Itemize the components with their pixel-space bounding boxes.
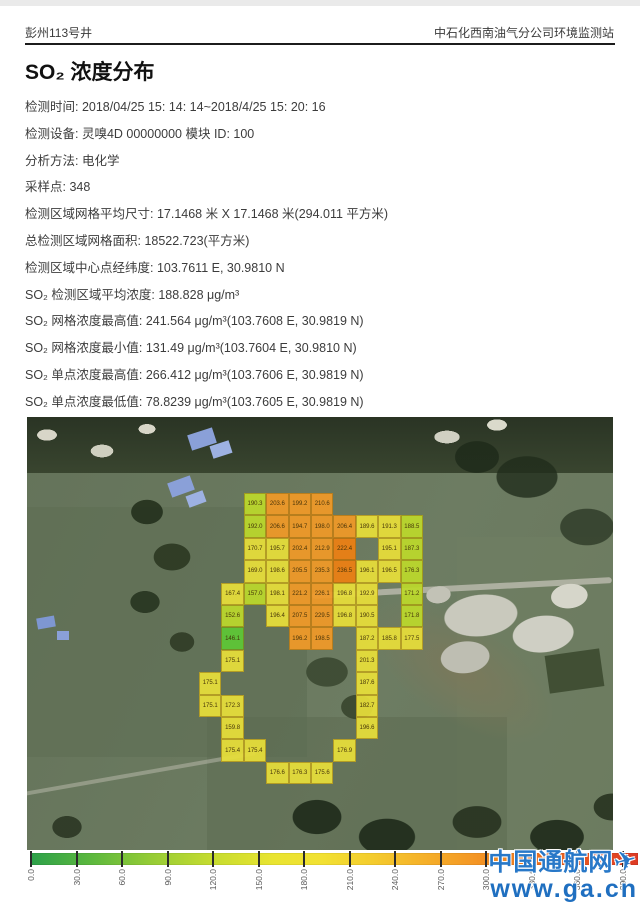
grid-cell: 196.6 xyxy=(356,717,378,739)
watermark: 中国通航网✈ www.ga.cn xyxy=(418,848,638,902)
grid-cell: 182.7 xyxy=(356,695,378,717)
grid-cell: 229.5 xyxy=(311,605,333,627)
colorbar-tick xyxy=(258,851,260,867)
airplane-icon: ✈ xyxy=(611,846,640,878)
colorbar-tick-label-text: 210.0 xyxy=(345,869,355,890)
grid-cell: 198.0 xyxy=(311,515,333,537)
grid-cell: 157.0 xyxy=(244,583,266,605)
page-title: SO₂ 浓度分布 xyxy=(25,56,155,86)
grid-cell: 171.8 xyxy=(401,605,423,627)
grid-cell: 191.3 xyxy=(378,515,400,537)
metadata-line: SO₂ 网格浓度最高值: 241.564 μg/m³(103.7608 E, 3… xyxy=(25,310,615,337)
metadata-line: 检测区域网格平均尺寸: 17.1468 米 X 17.1468 米(294.01… xyxy=(25,203,615,230)
grid-cell: 187.2 xyxy=(356,627,378,649)
grid-cell: 185.8 xyxy=(378,627,400,649)
metadata-line: 总检测区域网格面积: 18522.723(平方米) xyxy=(25,230,615,257)
header-station-name: 中石化西南油气分公司环境监测站 xyxy=(434,24,614,41)
grid-cell: 196.8 xyxy=(333,583,355,605)
colorbar-tick xyxy=(349,851,351,867)
grid-cell: 175.1 xyxy=(199,672,221,694)
grid-cell: 176.9 xyxy=(333,739,355,761)
colorbar-tick xyxy=(76,851,78,867)
metadata-line: 检测时间: 2018/04/25 15: 14: 14~2018/4/25 15… xyxy=(25,96,615,123)
watermark-site-name: 中国通航网✈ xyxy=(418,848,638,875)
metadata-line: 检测设备: 灵嗅4D 00000000 模块 ID: 100 xyxy=(25,123,615,150)
metadata-list: 检测时间: 2018/04/25 15: 14: 14~2018/4/25 15… xyxy=(25,96,615,418)
grid-cell: 221.2 xyxy=(289,583,311,605)
grid-cell: 203.6 xyxy=(266,493,288,515)
grid-cell: 194.7 xyxy=(289,515,311,537)
grid-cell: 176.3 xyxy=(401,560,423,582)
grid-cell: 206.6 xyxy=(266,515,288,537)
grid-cell: 192.0 xyxy=(244,515,266,537)
grid-cell: 202.4 xyxy=(289,538,311,560)
colorbar-tick-label-text: 30.0 xyxy=(72,869,82,886)
satellite-image: 190.3203.6199.2210.6192.0206.6194.7198.0… xyxy=(27,417,613,850)
grid-cell: 236.5 xyxy=(333,560,355,582)
colorbar-tick xyxy=(212,851,214,867)
grid-cell: 188.5 xyxy=(401,515,423,537)
metadata-line: 分析方法: 电化学 xyxy=(25,150,615,177)
grid-cell: 189.6 xyxy=(356,515,378,537)
colorbar-tick-label-text: 0.0 xyxy=(26,869,36,881)
grid-cell: 206.4 xyxy=(333,515,355,537)
colorbar-tick-label-text: 90.0 xyxy=(163,869,173,886)
grid-cell: 196.1 xyxy=(356,560,378,582)
page-top-strip xyxy=(0,0,640,6)
grid-cell: 210.6 xyxy=(311,493,333,515)
colorbar-tick-label-text: 240.0 xyxy=(390,869,400,890)
grid-cell: 146.1 xyxy=(221,627,243,649)
colorbar-tick xyxy=(167,851,169,867)
colorbar-tick-label-text: 60.0 xyxy=(117,869,127,886)
grid-cell: 205.5 xyxy=(289,560,311,582)
grid-cell: 176.6 xyxy=(266,762,288,784)
grid-cell: 190.3 xyxy=(244,493,266,515)
watermark-text: 中国通航网 xyxy=(488,849,613,876)
concentration-heatmap-grid: 190.3203.6199.2210.6192.0206.6194.7198.0… xyxy=(27,417,613,850)
grid-cell: 176.3 xyxy=(289,762,311,784)
grid-cell: 226.1 xyxy=(311,583,333,605)
colorbar-tick xyxy=(121,851,123,867)
colorbar-tick xyxy=(30,851,32,867)
grid-cell: 175.6 xyxy=(311,762,333,784)
metadata-line: 检测区域中心点经纬度: 103.7611 E, 30.9810 N xyxy=(25,257,615,284)
grid-cell: 187.3 xyxy=(401,538,423,560)
grid-cell: 201.3 xyxy=(356,650,378,672)
grid-cell: 192.9 xyxy=(356,583,378,605)
grid-cell: 198.6 xyxy=(266,560,288,582)
metadata-line: SO₂ 网格浓度最小值: 131.49 μg/m³(103.7604 E, 30… xyxy=(25,337,615,364)
grid-cell: 212.9 xyxy=(311,538,333,560)
grid-cell: 207.5 xyxy=(289,605,311,627)
metadata-line: 采样点: 348 xyxy=(25,176,615,203)
metadata-line: SO₂ 检测区域平均浓度: 188.828 μg/m³ xyxy=(25,284,615,311)
metadata-line: SO₂ 单点浓度最高值: 266.412 μg/m³(103.7606 E, 3… xyxy=(25,364,615,391)
grid-cell: 175.4 xyxy=(221,739,243,761)
grid-cell: 195.7 xyxy=(266,538,288,560)
grid-cell: 199.2 xyxy=(289,493,311,515)
metadata-line: SO₂ 单点浓度最低值: 78.8239 μg/m³(103.7605 E, 3… xyxy=(25,391,615,418)
colorbar-tick-label-text: 120.0 xyxy=(208,869,218,890)
grid-cell: 195.1 xyxy=(378,538,400,560)
grid-cell: 198.5 xyxy=(311,627,333,649)
grid-cell: 152.6 xyxy=(221,605,243,627)
grid-cell: 169.0 xyxy=(244,560,266,582)
colorbar-tick-label-text: 180.0 xyxy=(299,869,309,890)
grid-cell: 198.1 xyxy=(266,583,288,605)
colorbar-tick xyxy=(394,851,396,867)
grid-cell: 175.1 xyxy=(199,695,221,717)
grid-cell: 175.1 xyxy=(221,650,243,672)
grid-cell: 196.8 xyxy=(333,605,355,627)
report-page: 彭州113号井 中石化西南油气分公司环境监测站 SO₂ 浓度分布 检测时间: 2… xyxy=(0,0,640,905)
grid-cell: 171.2 xyxy=(401,583,423,605)
grid-cell: 190.5 xyxy=(356,605,378,627)
watermark-url: www.ga.cn xyxy=(418,877,638,902)
grid-cell: 222.4 xyxy=(333,538,355,560)
header-rule xyxy=(25,43,615,45)
grid-cell: 196.2 xyxy=(289,627,311,649)
grid-cell: 167.4 xyxy=(221,583,243,605)
colorbar-tick xyxy=(303,851,305,867)
grid-cell: 175.4 xyxy=(244,739,266,761)
grid-cell: 187.6 xyxy=(356,672,378,694)
grid-cell: 159.8 xyxy=(221,717,243,739)
grid-cell: 235.3 xyxy=(311,560,333,582)
grid-cell: 177.5 xyxy=(401,627,423,649)
grid-cell: 170.7 xyxy=(244,538,266,560)
header-well-name: 彭州113号井 xyxy=(25,24,92,41)
grid-cell: 196.4 xyxy=(266,605,288,627)
colorbar-tick-label-text: 150.0 xyxy=(254,869,264,890)
grid-cell: 196.5 xyxy=(378,560,400,582)
grid-cell: 172.3 xyxy=(221,695,243,717)
